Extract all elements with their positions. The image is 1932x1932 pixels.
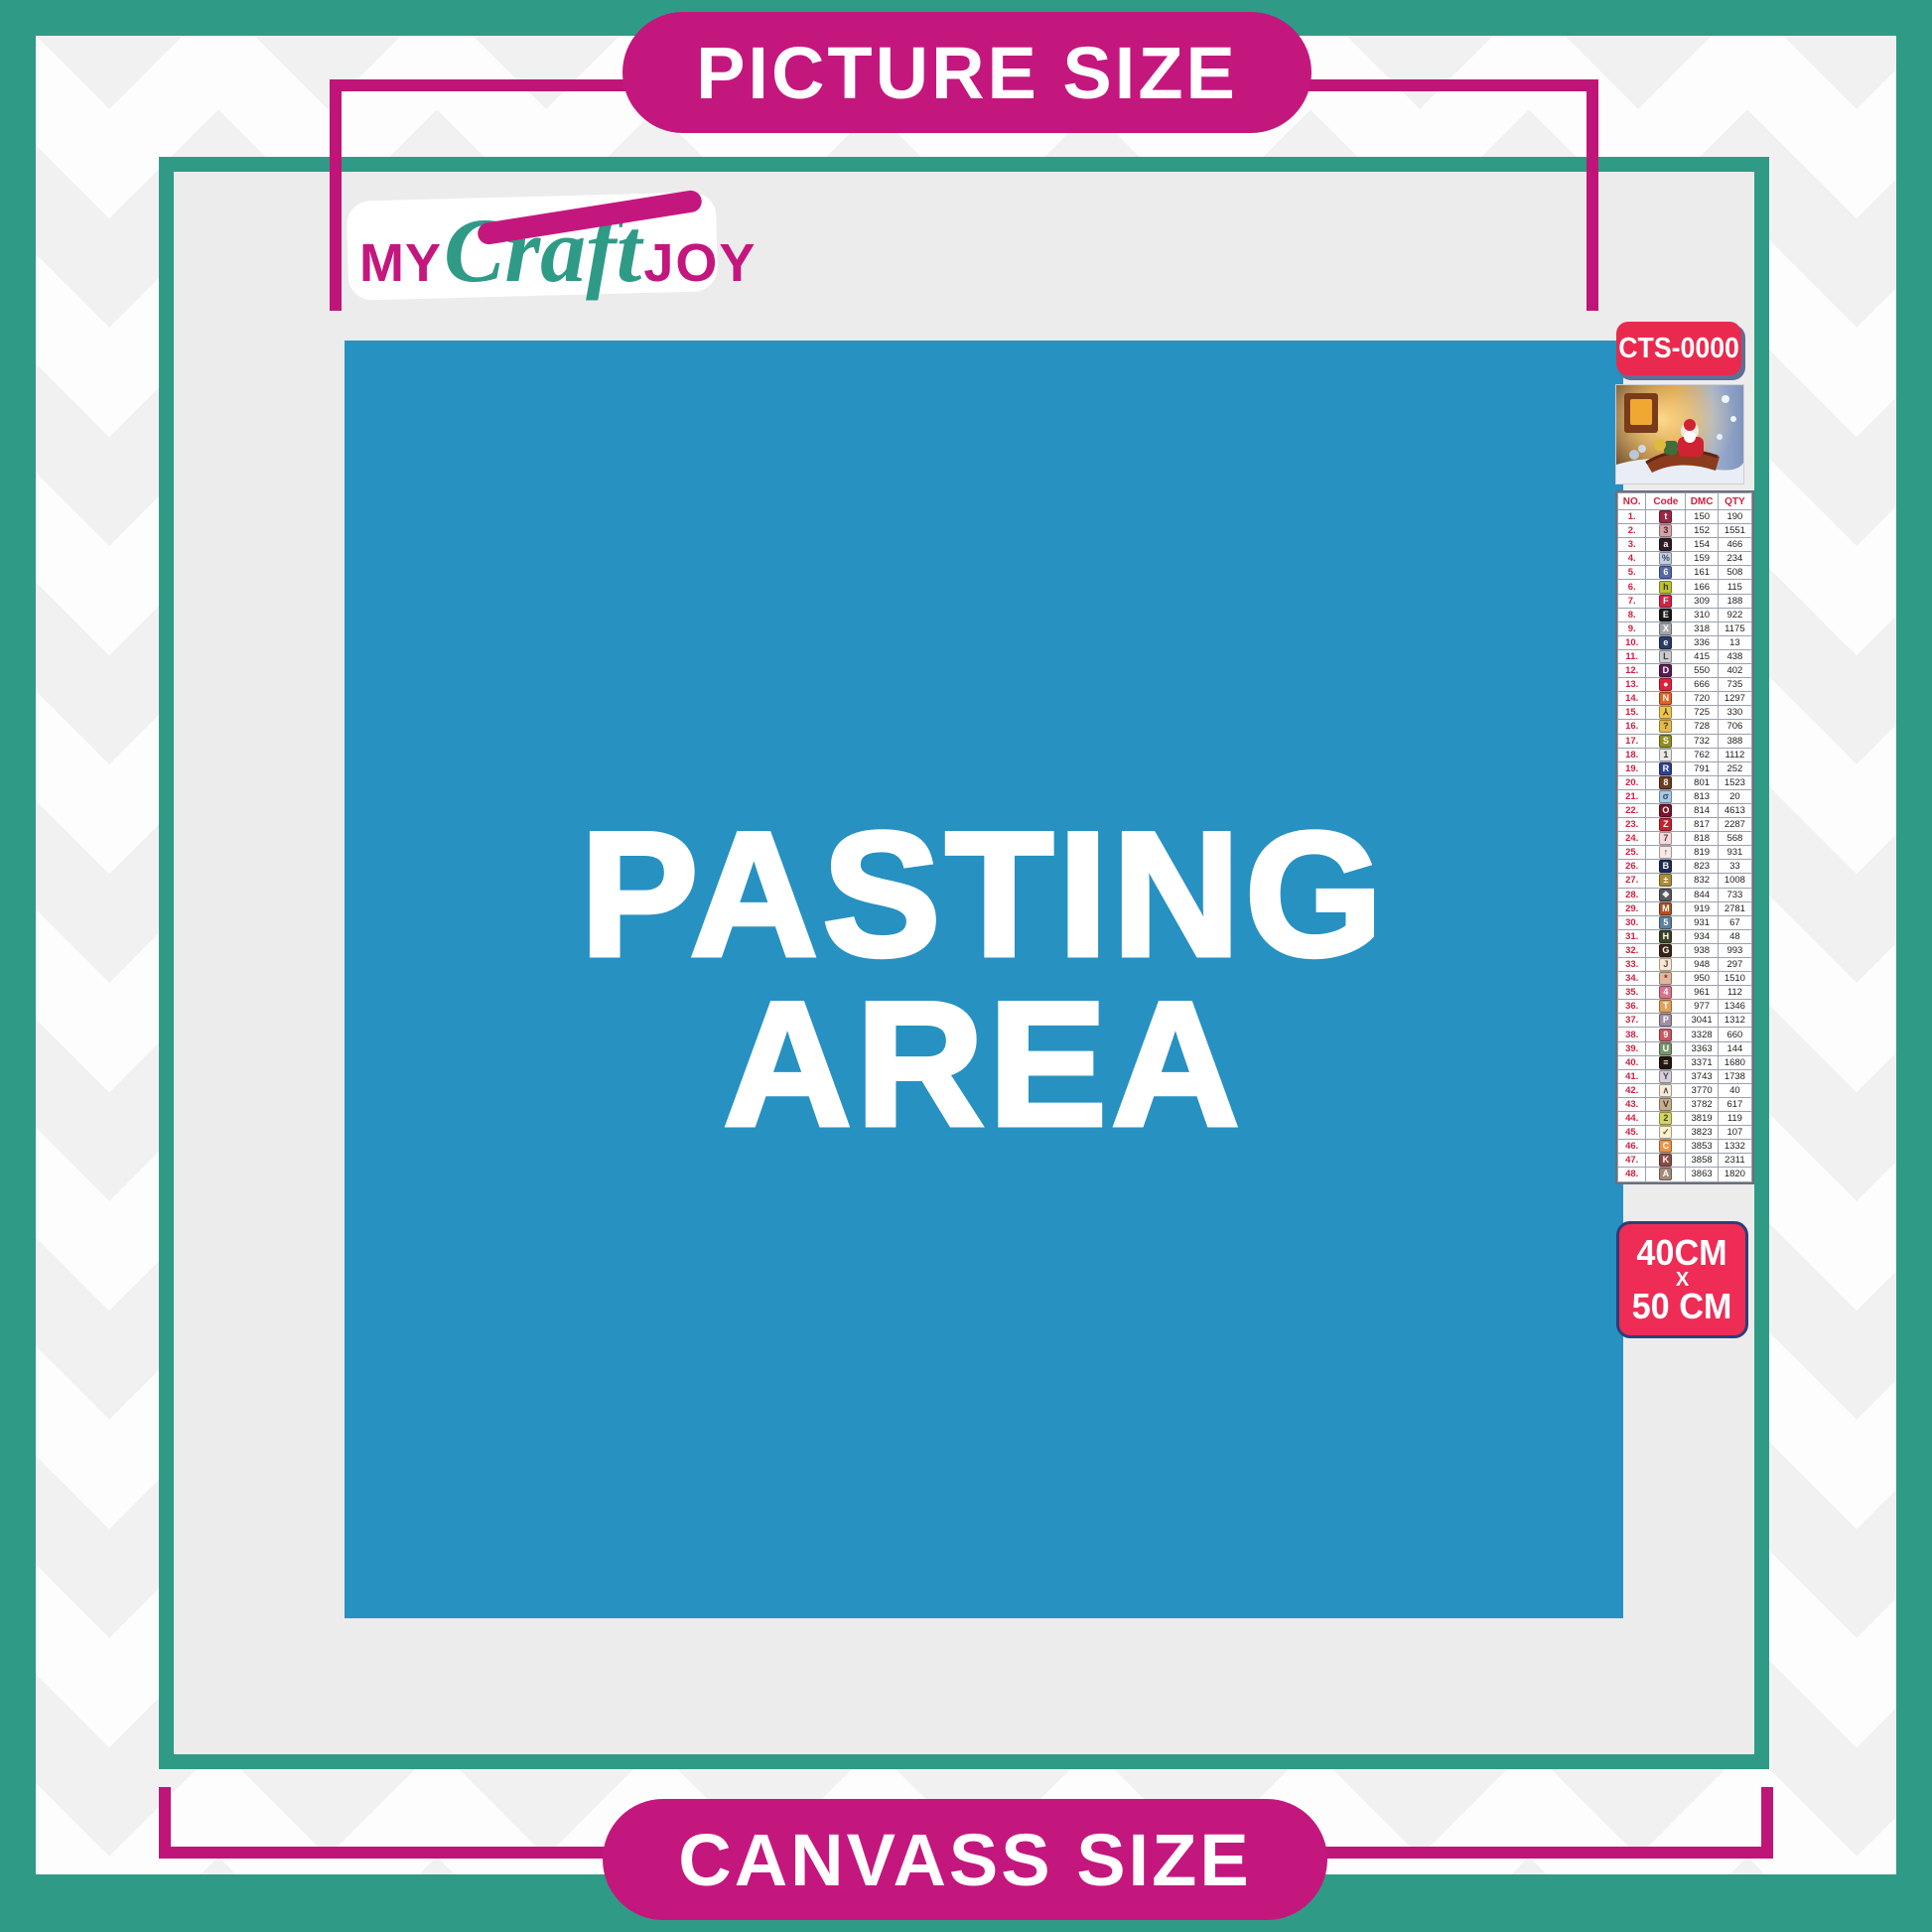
legend-row-number: 30.: [1618, 915, 1646, 929]
legend-row-number: 28.: [1618, 888, 1646, 901]
legend-dmc-value: 732: [1686, 734, 1718, 748]
legend-symbol-cell: ✓: [1646, 1126, 1686, 1140]
legend-symbol-cell: 4: [1646, 986, 1686, 1000]
symbol-chip: B: [1659, 860, 1672, 873]
legend-symbol-cell: 7: [1646, 832, 1686, 846]
legend-qty-value: 112: [1718, 986, 1751, 1000]
legend-row-number: 48.: [1618, 1168, 1646, 1181]
legend-symbol-cell: Y: [1646, 1069, 1686, 1083]
legend-symbol-cell: M: [1646, 901, 1686, 915]
legend-row-number: 46.: [1618, 1140, 1646, 1154]
legend-dmc-value: 309: [1686, 594, 1718, 608]
legend-dmc-value: 3863: [1686, 1168, 1718, 1181]
logo-text-my: MY: [359, 232, 442, 294]
legend-symbol-cell: 1: [1646, 748, 1686, 761]
symbol-chip: *: [1659, 972, 1672, 985]
canvass-size-label: CANVASS SIZE: [603, 1799, 1327, 1920]
symbol-chip: %: [1659, 552, 1672, 565]
size-badge: 40CM X 50 CM: [1616, 1221, 1748, 1338]
legend-dmc-value: 934: [1686, 929, 1718, 943]
legend-symbol-cell: ≡: [1646, 1055, 1686, 1069]
legend-row-number: 3.: [1618, 538, 1646, 552]
legend-row: 19.R791252: [1618, 761, 1752, 775]
legend-row: 6.h166115: [1618, 580, 1752, 594]
legend-dmc-value: 154: [1686, 538, 1718, 552]
legend-row-number: 35.: [1618, 986, 1646, 1000]
legend-qty-value: 1820: [1718, 1168, 1751, 1181]
symbol-chip: 9: [1659, 1029, 1672, 1041]
symbol-chip: ?: [1659, 720, 1672, 733]
symbol-chip: K: [1659, 1154, 1672, 1167]
legend-dmc-value: 919: [1686, 901, 1718, 915]
legend-dmc-value: 336: [1686, 635, 1718, 649]
legend-qty-value: 67: [1718, 915, 1751, 929]
legend-symbol-cell: ❖: [1646, 888, 1686, 901]
size-height-text: 50 CM: [1632, 1290, 1732, 1323]
legend-symbol-cell: L: [1646, 649, 1686, 663]
legend-qty-value: 234: [1718, 552, 1751, 566]
legend-dmc-value: 725: [1686, 706, 1718, 720]
symbol-chip: σ: [1659, 790, 1672, 803]
legend-symbol-cell: U: [1646, 1041, 1686, 1055]
legend-row: 1.t150190: [1618, 510, 1752, 524]
legend-symbol-cell: N: [1646, 692, 1686, 706]
canvas-area: PASTING AREA: [174, 172, 1754, 1754]
symbol-chip: L: [1659, 650, 1672, 663]
legend-symbol-cell: O: [1646, 803, 1686, 817]
legend-qty-value: 188: [1718, 594, 1751, 608]
legend-row: 24.7818568: [1618, 832, 1752, 846]
canvass-size-bracket-left: [159, 1787, 171, 1859]
legend-row: 3.a154466: [1618, 538, 1752, 552]
legend-dmc-value: 931: [1686, 915, 1718, 929]
legend-symbol-cell: F: [1646, 594, 1686, 608]
legend-row-number: 20.: [1618, 775, 1646, 789]
legend-qty-value: 1551: [1718, 524, 1751, 538]
legend-qty-value: 144: [1718, 1041, 1751, 1055]
legend-qty-value: 2311: [1718, 1154, 1751, 1168]
legend-symbol-cell: 5: [1646, 915, 1686, 929]
legend-symbol-cell: 9: [1646, 1028, 1686, 1041]
legend-row: 8.E310922: [1618, 608, 1752, 621]
legend-symbol-cell: A: [1646, 1168, 1686, 1181]
legend-dmc-value: 150: [1686, 510, 1718, 524]
legend-row-number: 24.: [1618, 832, 1646, 846]
legend-dmc-value: 166: [1686, 580, 1718, 594]
legend-row-number: 17.: [1618, 734, 1646, 748]
symbol-chip: D: [1659, 664, 1672, 677]
symbol-chip: N: [1659, 692, 1672, 705]
legend-row: 22.O8144613: [1618, 803, 1752, 817]
legend-qty-value: 1346: [1718, 1000, 1751, 1014]
legend-qty-value: 993: [1718, 943, 1751, 957]
legend-row-number: 25.: [1618, 846, 1646, 860]
legend-dmc-value: 3371: [1686, 1055, 1718, 1069]
legend-symbol-cell: B: [1646, 860, 1686, 874]
legend-dmc-value: 832: [1686, 874, 1718, 888]
symbol-chip: a: [1659, 538, 1672, 551]
legend-dmc-value: 152: [1686, 524, 1718, 538]
brand-logo: MY Craft JOY: [349, 185, 715, 300]
symbol-chip: 1: [1659, 749, 1672, 761]
legend-dmc-value: 666: [1686, 678, 1718, 692]
symbol-chip: U: [1659, 1042, 1672, 1055]
legend-qty-value: 2287: [1718, 818, 1751, 832]
legend-symbol-cell: h: [1646, 580, 1686, 594]
legend-row-number: 32.: [1618, 943, 1646, 957]
legend-qty-value: 1312: [1718, 1014, 1751, 1028]
legend-row: 20.88011523: [1618, 775, 1752, 789]
legend-row-number: 31.: [1618, 929, 1646, 943]
symbol-chip: 4: [1659, 986, 1672, 999]
symbol-chip: 2: [1659, 1112, 1672, 1125]
canvas-frame: PASTING AREA: [159, 157, 1769, 1769]
legend-symbol-cell: V: [1646, 1097, 1686, 1111]
symbol-chip: O: [1659, 804, 1672, 817]
picture-size-label: PICTURE SIZE: [622, 12, 1311, 133]
legend-dmc-value: 720: [1686, 692, 1718, 706]
legend-row: 12.D550402: [1618, 664, 1752, 678]
legend-row: 40.≡33711680: [1618, 1055, 1752, 1069]
pasting-area: PASTING AREA: [345, 341, 1623, 1618]
canvass-size-bracket-right: [1761, 1787, 1773, 1859]
legend-row-number: 8.: [1618, 608, 1646, 621]
legend-dmc-value: 161: [1686, 566, 1718, 580]
legend-dmc-value: 950: [1686, 972, 1718, 986]
picture-size-bracket-right: [1587, 79, 1598, 311]
legend-row-number: 41.: [1618, 1069, 1646, 1083]
legend-dmc-value: 819: [1686, 846, 1718, 860]
outer-border-left: [0, 0, 36, 1932]
design-preview-image: [1616, 385, 1743, 483]
legend-qty-value: 119: [1718, 1112, 1751, 1126]
legend-symbol-cell: D: [1646, 664, 1686, 678]
outer-border-right: [1896, 0, 1932, 1932]
legend-qty-value: 931: [1718, 846, 1751, 860]
legend-symbol-cell: C: [1646, 1140, 1686, 1154]
legend-row: 32.G938993: [1618, 943, 1752, 957]
symbol-chip: ❖: [1659, 889, 1672, 901]
legend-dmc-value: 977: [1686, 1000, 1718, 1014]
legend-row: 41.Y37431738: [1618, 1069, 1752, 1083]
legend-dmc-value: 3770: [1686, 1083, 1718, 1097]
legend-symbol-cell: 6: [1646, 566, 1686, 580]
legend-header-row: NO. Code DMC QTY: [1618, 493, 1752, 510]
legend-row: 14.N7201297: [1618, 692, 1752, 706]
symbol-chip: ⅄: [1659, 706, 1672, 719]
symbol-chip: 6: [1659, 566, 1672, 579]
legend-row: 16.?728706: [1618, 720, 1752, 734]
legend-row-number: 22.: [1618, 803, 1646, 817]
symbol-chip: G: [1659, 944, 1672, 957]
legend-qty-value: 1297: [1718, 692, 1751, 706]
legend-qty-value: 1008: [1718, 874, 1751, 888]
legend-qty-value: 20: [1718, 789, 1751, 803]
symbol-chip: ≡: [1659, 1056, 1672, 1069]
symbol-chip: 5: [1659, 916, 1672, 929]
legend-qty-value: 297: [1718, 958, 1751, 972]
legend-dmc-value: 3363: [1686, 1041, 1718, 1055]
legend-qty-value: 438: [1718, 649, 1751, 663]
legend-row-number: 47.: [1618, 1154, 1646, 1168]
logo-text-joy: JOY: [643, 232, 757, 294]
legend-dmc-value: 791: [1686, 761, 1718, 775]
legend-row: 30.593167: [1618, 915, 1752, 929]
legend-row-number: 7.: [1618, 594, 1646, 608]
legend-row: 34.*9501510: [1618, 972, 1752, 986]
legend-dmc-value: 3328: [1686, 1028, 1718, 1041]
legend-dmc-value: 961: [1686, 986, 1718, 1000]
legend-qty-value: 735: [1718, 678, 1751, 692]
legend-row: 15.⅄725330: [1618, 706, 1752, 720]
symbol-chip: ∧: [1659, 1084, 1672, 1097]
symbol-chip: E: [1659, 609, 1672, 621]
legend-symbol-cell: ±: [1646, 874, 1686, 888]
legend-symbol-cell: E: [1646, 608, 1686, 621]
legend-qty-value: 660: [1718, 1028, 1751, 1041]
legend-row: 5.6161508: [1618, 566, 1752, 580]
symbol-chip: ±: [1659, 874, 1672, 887]
legend-qty-value: 1332: [1718, 1140, 1751, 1154]
legend-dmc-value: 801: [1686, 775, 1718, 789]
legend-row-number: 43.: [1618, 1097, 1646, 1111]
legend-symbol-cell: %: [1646, 552, 1686, 566]
legend-qty-value: 1738: [1718, 1069, 1751, 1083]
legend-row: 13.●666735: [1618, 678, 1752, 692]
product-code-badge: CTS-0000: [1616, 322, 1741, 375]
pasting-area-label-line1: PASTING: [581, 810, 1388, 980]
legend-row: 11.L415438: [1618, 649, 1752, 663]
legend-qty-value: 107: [1718, 1126, 1751, 1140]
legend-row-number: 15.: [1618, 706, 1646, 720]
legend-qty-value: 33: [1718, 860, 1751, 874]
legend-symbol-cell: T: [1646, 1000, 1686, 1014]
symbol-chip: 7: [1659, 832, 1672, 845]
legend-row-number: 29.: [1618, 901, 1646, 915]
legend-symbol-cell: t: [1646, 510, 1686, 524]
legend-dmc-value: 3823: [1686, 1126, 1718, 1140]
legend-row: 45.✓3823107: [1618, 1126, 1752, 1140]
legend-row-number: 33.: [1618, 958, 1646, 972]
legend-symbol-cell: e: [1646, 635, 1686, 649]
symbol-chip: H: [1659, 930, 1672, 943]
legend-qty-value: 508: [1718, 566, 1751, 580]
legend-qty-value: 922: [1718, 608, 1751, 621]
legend-dmc-value: 948: [1686, 958, 1718, 972]
legend-symbol-cell: ?: [1646, 720, 1686, 734]
legend-symbol-cell: J: [1646, 958, 1686, 972]
legend-row: 48.A38631820: [1618, 1168, 1752, 1181]
symbol-chip: A: [1659, 1168, 1672, 1180]
legend-dmc-value: 814: [1686, 803, 1718, 817]
legend-row: 31.H93448: [1618, 929, 1752, 943]
legend-dmc-value: 3782: [1686, 1097, 1718, 1111]
legend-symbol-cell: ●: [1646, 678, 1686, 692]
symbol-chip: V: [1659, 1098, 1672, 1111]
legend-col-no: NO.: [1618, 493, 1646, 510]
legend-row-number: 13.: [1618, 678, 1646, 692]
legend-dmc-value: 938: [1686, 943, 1718, 957]
legend-row-number: 39.: [1618, 1041, 1646, 1055]
legend-symbol-cell: R: [1646, 761, 1686, 775]
symbol-chip: ●: [1659, 678, 1672, 691]
legend-row-number: 6.: [1618, 580, 1646, 594]
symbol-chip: C: [1659, 1140, 1672, 1153]
legend-row: 35.4961112: [1618, 986, 1752, 1000]
legend-qty-value: 13: [1718, 635, 1751, 649]
symbol-chip: Z: [1659, 818, 1672, 831]
legend-dmc-value: 844: [1686, 888, 1718, 901]
legend-row-number: 27.: [1618, 874, 1646, 888]
symbol-chip: M: [1659, 902, 1672, 915]
legend-symbol-cell: K: [1646, 1154, 1686, 1168]
legend-row: 33.J948297: [1618, 958, 1752, 972]
legend-row: 29.M9192781: [1618, 901, 1752, 915]
legend-qty-value: 1523: [1718, 775, 1751, 789]
legend-row-number: 16.: [1618, 720, 1646, 734]
legend-row: 46.C38531332: [1618, 1140, 1752, 1154]
product-graphic: PASTING AREA PICTURE SIZE CANVASS SIZE M…: [0, 0, 1932, 1932]
legend-symbol-cell: H: [1646, 929, 1686, 943]
legend-row-number: 40.: [1618, 1055, 1646, 1069]
legend-symbol-cell: σ: [1646, 789, 1686, 803]
legend-dmc-value: 728: [1686, 720, 1718, 734]
legend-row-number: 18.: [1618, 748, 1646, 761]
legend-row: 9.X3181175: [1618, 621, 1752, 635]
legend-dmc-value: 415: [1686, 649, 1718, 663]
legend-dmc-value: 823: [1686, 860, 1718, 874]
legend-row-number: 12.: [1618, 664, 1646, 678]
legend-symbol-cell: ↑: [1646, 846, 1686, 860]
legend-row: 36.T9771346: [1618, 1000, 1752, 1014]
symbol-chip: F: [1659, 595, 1672, 608]
symbol-chip: R: [1659, 762, 1672, 775]
legend-dmc-value: 3858: [1686, 1154, 1718, 1168]
legend-row: 44.23819119: [1618, 1112, 1752, 1126]
legend-dmc-value: 3041: [1686, 1014, 1718, 1028]
legend-symbol-cell: 2: [1646, 1112, 1686, 1126]
legend-dmc-value: 818: [1686, 832, 1718, 846]
legend-row-number: 38.: [1618, 1028, 1646, 1041]
legend-row: 39.U3363144: [1618, 1041, 1752, 1055]
legend-row-number: 2.: [1618, 524, 1646, 538]
legend-dmc-value: 3819: [1686, 1112, 1718, 1126]
legend-dmc-value: 817: [1686, 818, 1718, 832]
legend-row-number: 5.: [1618, 566, 1646, 580]
legend-row-number: 14.: [1618, 692, 1646, 706]
legend-row-number: 26.: [1618, 860, 1646, 874]
legend-row-number: 42.: [1618, 1083, 1646, 1097]
legend-symbol-cell: ⅄: [1646, 706, 1686, 720]
legend-qty-value: 330: [1718, 706, 1751, 720]
legend-row-number: 23.: [1618, 818, 1646, 832]
picture-size-bracket-left: [330, 79, 342, 311]
legend-qty-value: 4613: [1718, 803, 1751, 817]
legend-dmc-value: 3743: [1686, 1069, 1718, 1083]
legend-dmc-value: 762: [1686, 748, 1718, 761]
legend-row: 42.∧377040: [1618, 1083, 1752, 1097]
legend-row-number: 34.: [1618, 972, 1646, 986]
legend-qty-value: 48: [1718, 929, 1751, 943]
legend-row-number: 37.: [1618, 1014, 1646, 1028]
legend-qty-value: 388: [1718, 734, 1751, 748]
legend-dmc-value: 310: [1686, 608, 1718, 621]
legend-row-number: 10.: [1618, 635, 1646, 649]
legend-qty-value: 252: [1718, 761, 1751, 775]
legend-dmc-value: 813: [1686, 789, 1718, 803]
legend-row-number: 19.: [1618, 761, 1646, 775]
legend-symbol-cell: Z: [1646, 818, 1686, 832]
symbol-chip: t: [1659, 510, 1672, 523]
legend-qty-value: 466: [1718, 538, 1751, 552]
legend-symbol-cell: G: [1646, 943, 1686, 957]
legend-row: 17.S732388: [1618, 734, 1752, 748]
legend-row-number: 11.: [1618, 649, 1646, 663]
legend-row: 4.%159234: [1618, 552, 1752, 566]
legend-symbol-cell: a: [1646, 538, 1686, 552]
legend-qty-value: 568: [1718, 832, 1751, 846]
symbol-chip: 3: [1659, 524, 1672, 537]
symbol-chip: 8: [1659, 776, 1672, 789]
legend-row-number: 4.: [1618, 552, 1646, 566]
pasting-area-label-line2: AREA: [724, 980, 1244, 1150]
legend-qty-value: 733: [1718, 888, 1751, 901]
legend-row-number: 9.: [1618, 621, 1646, 635]
legend-row-number: 1.: [1618, 510, 1646, 524]
legend-row: 21.σ81320: [1618, 789, 1752, 803]
legend-symbol-cell: P: [1646, 1014, 1686, 1028]
legend-row: 23.Z8172287: [1618, 818, 1752, 832]
legend-qty-value: 40: [1718, 1083, 1751, 1097]
legend-qty-value: 1112: [1718, 748, 1751, 761]
symbol-chip: ✓: [1659, 1126, 1672, 1139]
symbol-chip: Y: [1659, 1070, 1672, 1083]
legend-col-dmc: DMC: [1686, 493, 1718, 510]
symbol-chip: X: [1659, 622, 1672, 635]
color-legend-table: NO. Code DMC QTY 1.t1501902.315215513.a1…: [1615, 490, 1754, 1184]
legend-qty-value: 1510: [1718, 972, 1751, 986]
legend-dmc-value: 318: [1686, 621, 1718, 635]
legend-symbol-cell: *: [1646, 972, 1686, 986]
legend-qty-value: 115: [1718, 580, 1751, 594]
legend-row: 37.P30411312: [1618, 1014, 1752, 1028]
symbol-chip: ↑: [1659, 846, 1672, 859]
legend-symbol-cell: X: [1646, 621, 1686, 635]
legend-qty-value: 1175: [1718, 621, 1751, 635]
legend-qty-value: 706: [1718, 720, 1751, 734]
symbol-chip: S: [1659, 735, 1672, 748]
size-width-text: 40CM: [1637, 1236, 1727, 1270]
legend-row: 38.93328660: [1618, 1028, 1752, 1041]
symbol-chip: P: [1659, 1014, 1672, 1027]
legend-row-number: 45.: [1618, 1126, 1646, 1140]
legend-row-number: 44.: [1618, 1112, 1646, 1126]
legend-row: 18.17621112: [1618, 748, 1752, 761]
legend-qty-value: 617: [1718, 1097, 1751, 1111]
legend-col-code: Code: [1646, 493, 1686, 510]
legend-qty-value: 402: [1718, 664, 1751, 678]
product-code-text: CTS-0000: [1618, 333, 1739, 365]
legend-symbol-cell: 8: [1646, 775, 1686, 789]
legend-row: 2.31521551: [1618, 524, 1752, 538]
legend-row-number: 21.: [1618, 789, 1646, 803]
legend-dmc-value: 3853: [1686, 1140, 1718, 1154]
symbol-chip: T: [1659, 1000, 1672, 1013]
legend-qty-value: 1680: [1718, 1055, 1751, 1069]
symbol-chip: h: [1659, 581, 1672, 594]
legend-row-number: 36.: [1618, 1000, 1646, 1014]
legend-row: 10.e33613: [1618, 635, 1752, 649]
